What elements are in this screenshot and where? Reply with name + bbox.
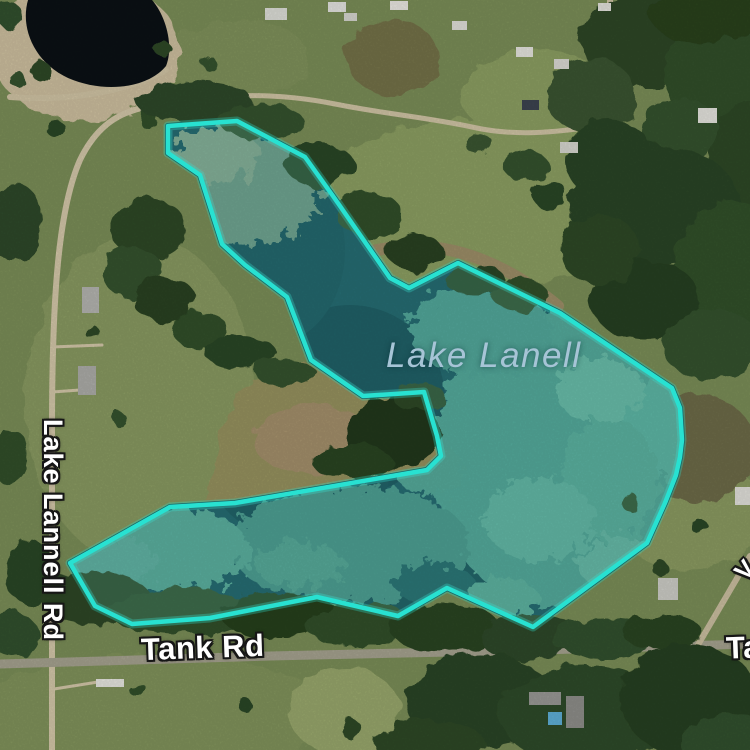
satellite-canvas xyxy=(0,0,750,750)
map-viewport[interactable]: Lake Lanell Lake Lannell Rd Tank Rd Ta V xyxy=(0,0,750,750)
